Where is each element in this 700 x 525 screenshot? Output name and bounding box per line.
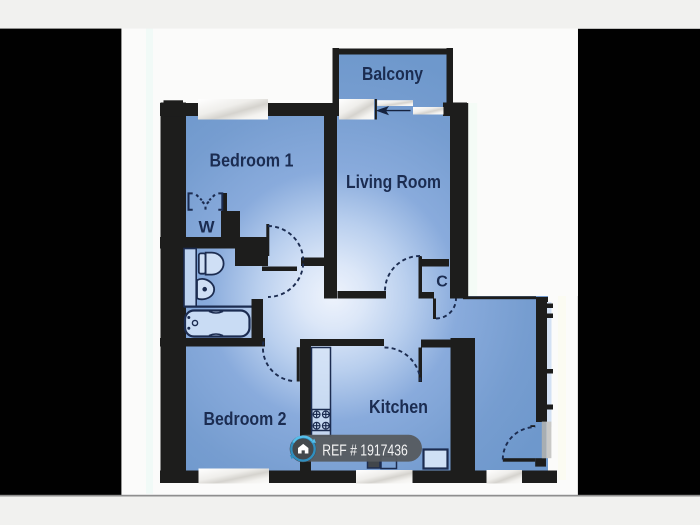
svg-text:Living Room: Living Room: [346, 172, 441, 192]
svg-text:W: W: [198, 218, 215, 237]
svg-text:Bedroom 2: Bedroom 2: [204, 409, 287, 429]
svg-text:Bedroom 1: Bedroom 1: [210, 151, 294, 171]
svg-text:C: C: [436, 274, 448, 291]
svg-text:Balcony: Balcony: [362, 64, 423, 84]
svg-text:REF # 1917436: REF # 1917436: [322, 442, 408, 459]
svg-text:Kitchen: Kitchen: [369, 397, 428, 417]
